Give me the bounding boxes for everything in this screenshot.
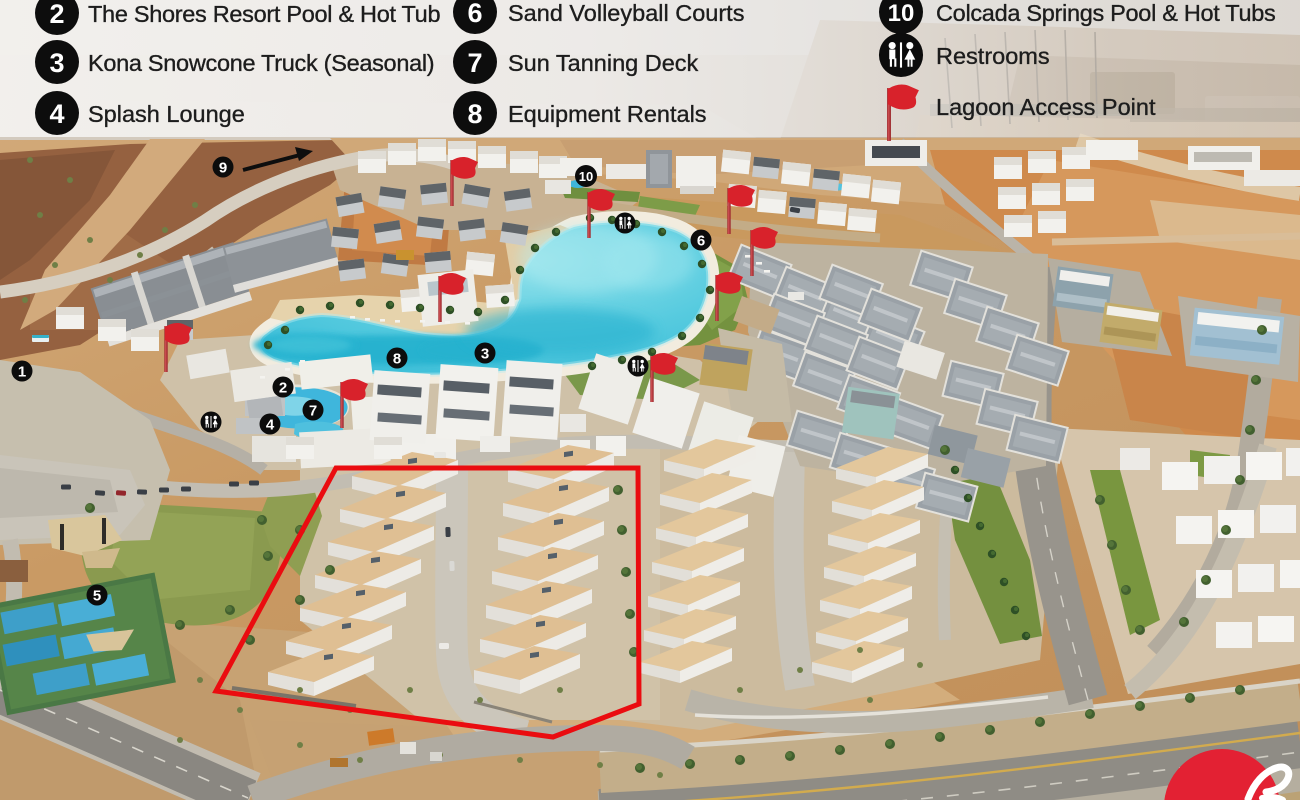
svg-text:3: 3 xyxy=(481,346,489,363)
svg-text:6: 6 xyxy=(697,233,705,250)
svg-text:2: 2 xyxy=(279,380,287,397)
svg-text:3: 3 xyxy=(49,48,64,78)
svg-text:8: 8 xyxy=(393,351,401,368)
svg-text:Restrooms: Restrooms xyxy=(936,43,1050,69)
svg-text:6: 6 xyxy=(467,0,482,28)
svg-text:Lagoon Access Point: Lagoon Access Point xyxy=(936,94,1156,120)
svg-text:The Shores Resort Pool & Hot T: The Shores Resort Pool & Hot Tub xyxy=(88,1,440,27)
svg-text:1: 1 xyxy=(18,364,26,381)
svg-text:7: 7 xyxy=(467,48,482,78)
svg-text:Colcada Springs Pool & Hot Tub: Colcada Springs Pool & Hot Tubs xyxy=(936,0,1275,26)
svg-text:7: 7 xyxy=(309,403,317,420)
svg-text:4: 4 xyxy=(266,417,275,434)
svg-text:10: 10 xyxy=(888,0,915,27)
svg-text:5: 5 xyxy=(93,588,101,605)
svg-text:4: 4 xyxy=(49,99,64,129)
svg-text:8: 8 xyxy=(467,99,482,129)
svg-text:Kona Snowcone Truck (Seasonal): Kona Snowcone Truck (Seasonal) xyxy=(88,50,434,76)
svg-text:10: 10 xyxy=(579,169,593,184)
svg-text:Sand Volleyball Courts: Sand Volleyball Courts xyxy=(508,0,744,26)
svg-text:Equipment Rentals: Equipment Rentals xyxy=(508,101,707,127)
svg-text:2: 2 xyxy=(49,0,64,29)
svg-text:Splash Lounge: Splash Lounge xyxy=(88,101,245,127)
svg-text:Sun Tanning Deck: Sun Tanning Deck xyxy=(508,50,699,76)
svg-text:9: 9 xyxy=(219,160,227,177)
